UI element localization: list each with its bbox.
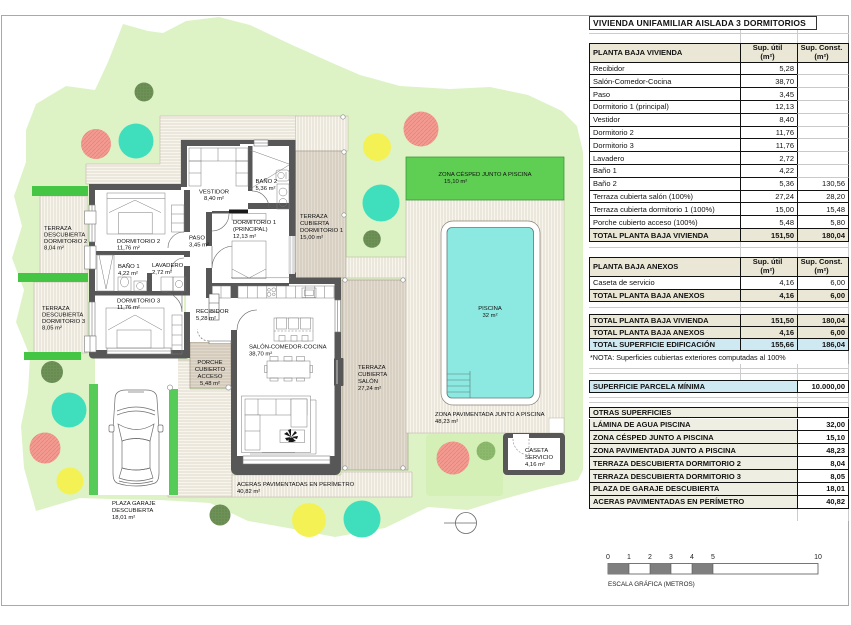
svg-text:15,00 m²: 15,00 m²: [300, 235, 323, 241]
svg-text:DESCUBIERTA: DESCUBIERTA: [112, 508, 153, 514]
svg-text:DESCUBIERTA: DESCUBIERTA: [42, 313, 83, 319]
svg-text:ZONA PAVIMENTADA JUNTO A PISCI: ZONA PAVIMENTADA JUNTO A PISCINA: [435, 412, 545, 418]
svg-text:48,23 m²: 48,23 m²: [435, 419, 458, 425]
svg-text:4: 4: [690, 554, 694, 561]
svg-text:5,28 m²: 5,28 m²: [196, 316, 216, 322]
svg-text:CASETA: CASETA: [525, 448, 548, 454]
svg-text:38,70 m²: 38,70 m²: [249, 352, 272, 358]
svg-text:TERRAZA: TERRAZA: [44, 226, 72, 232]
svg-text:3: 3: [669, 554, 673, 561]
svg-text:15,10 m²: 15,10 m²: [444, 179, 467, 185]
svg-text:PLAZA GARAJE: PLAZA GARAJE: [112, 501, 156, 507]
svg-text:(PRINCIPAL): (PRINCIPAL): [233, 227, 268, 233]
svg-text:8,40 m²: 8,40 m²: [204, 196, 224, 202]
svg-text:5,48 m²: 5,48 m²: [200, 381, 220, 387]
svg-text:ESCALA GRÁFICA (METROS): ESCALA GRÁFICA (METROS): [608, 579, 695, 588]
svg-text:8,05 m²: 8,05 m²: [42, 326, 62, 332]
svg-text:LAVADERO: LAVADERO: [152, 263, 184, 269]
svg-text:VESTIDOR: VESTIDOR: [199, 189, 229, 195]
svg-text:5,36 m²: 5,36 m²: [256, 186, 276, 192]
svg-text:27,24 m²: 27,24 m²: [358, 386, 381, 392]
svg-text:32 m²: 32 m²: [482, 313, 497, 319]
svg-text:1: 1: [627, 554, 631, 561]
svg-text:2,72 m²: 2,72 m²: [152, 270, 172, 276]
svg-text:5: 5: [711, 554, 715, 561]
svg-text:11,76 m²: 11,76 m²: [117, 305, 140, 311]
svg-text:BAÑO 1: BAÑO 1: [118, 263, 140, 270]
svg-text:8,04 m²: 8,04 m²: [44, 246, 64, 252]
svg-text:TERRAZA: TERRAZA: [300, 214, 328, 220]
svg-text:BAÑO 2: BAÑO 2: [256, 178, 278, 185]
svg-text:11,76 m²: 11,76 m²: [117, 246, 140, 252]
svg-text:DORMITORIO 1: DORMITORIO 1: [300, 228, 343, 234]
svg-text:4,16 m²: 4,16 m²: [525, 462, 545, 468]
svg-text:SALÓN: SALÓN: [358, 378, 378, 385]
svg-text:ZONA CÉSPED JUNTO A PISCINA: ZONA CÉSPED JUNTO A PISCINA: [438, 171, 531, 178]
svg-text:10: 10: [814, 554, 822, 561]
svg-text:0: 0: [606, 554, 610, 561]
svg-text:CUBIERTO: CUBIERTO: [195, 367, 226, 373]
svg-text:DESCUBIERTA: DESCUBIERTA: [44, 233, 85, 239]
svg-text:SALÓN-COMEDOR-COCINA: SALÓN-COMEDOR-COCINA: [249, 344, 327, 351]
svg-text:SERVICIO: SERVICIO: [525, 455, 553, 461]
svg-text:DORMITORIO 3: DORMITORIO 3: [42, 319, 86, 325]
svg-text:4,22 m²: 4,22 m²: [118, 271, 138, 277]
svg-text:DORMITORIO 2: DORMITORIO 2: [117, 239, 160, 245]
svg-text:3,45 m²: 3,45 m²: [189, 243, 209, 249]
svg-text:DORMITORIO 1: DORMITORIO 1: [233, 220, 276, 226]
svg-text:2: 2: [648, 554, 652, 561]
svg-text:PASO: PASO: [189, 236, 205, 242]
svg-text:12,13 m²: 12,13 m²: [233, 234, 256, 240]
svg-text:PORCHE: PORCHE: [197, 360, 222, 366]
svg-text:DORMITORIO 3: DORMITORIO 3: [117, 299, 161, 305]
svg-text:PISCINA: PISCINA: [478, 306, 502, 312]
svg-text:18,01 m²: 18,01 m²: [112, 515, 135, 521]
svg-text:ACCESO: ACCESO: [198, 374, 223, 380]
svg-text:CUBIERTA: CUBIERTA: [358, 372, 387, 378]
svg-text:CUBIERTA: CUBIERTA: [300, 221, 329, 227]
svg-text:RECIBIDOR: RECIBIDOR: [196, 309, 229, 315]
svg-text:40,82 m²: 40,82 m²: [237, 489, 260, 495]
svg-text:TERRAZA: TERRAZA: [358, 365, 386, 371]
svg-text:TERRAZA: TERRAZA: [42, 306, 70, 312]
svg-text:ACERAS PAVIMENTADAS EN PERÍMET: ACERAS PAVIMENTADAS EN PERÍMETRO: [237, 481, 355, 488]
svg-text:DORMITORIO 2: DORMITORIO 2: [44, 239, 87, 245]
